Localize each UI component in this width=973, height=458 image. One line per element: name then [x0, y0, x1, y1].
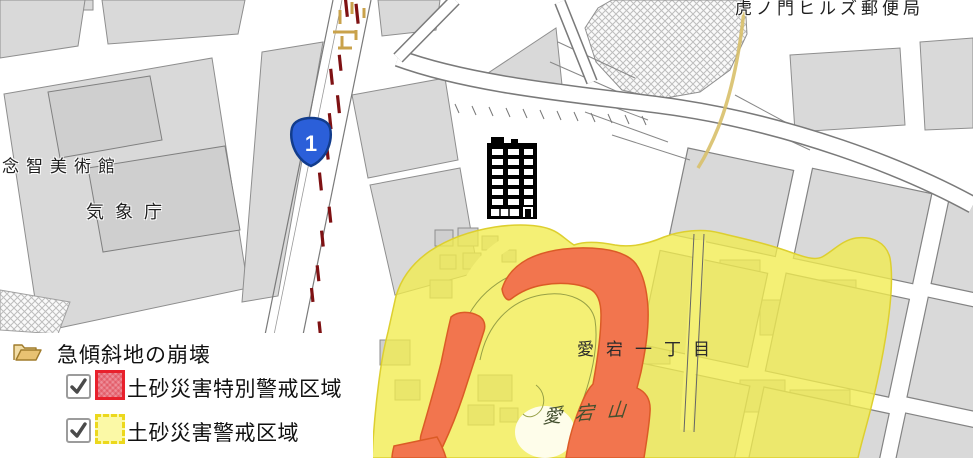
- checkmark-icon: [68, 376, 89, 397]
- map-label-post-office: 虎ノ門ヒルズ郵便局: [735, 0, 924, 19]
- legend-label-special-warning: 土砂災害特別警戒区域: [127, 373, 342, 403]
- map-label-atago-1chome: 愛宕一丁目: [577, 335, 722, 360]
- checkmark-icon: [68, 420, 89, 441]
- map-label-museum: 念智美術館: [2, 152, 122, 177]
- folder-open-icon[interactable]: [12, 341, 42, 363]
- legend-row-special-warning: 土砂災害特別警戒区域: [0, 372, 373, 402]
- map-canvas[interactable]: 1 念智美術館 気象庁 虎ノ門ヒルズ郵便局 愛宕一丁目 愛宕山 急傾斜地の崩壊 …: [0, 0, 973, 458]
- legend-row-warning: 土砂災害警戒区域: [0, 416, 373, 446]
- legend-group-title[interactable]: 急傾斜地の崩壊: [57, 339, 211, 369]
- route-number: 1: [305, 131, 317, 156]
- checkbox-warning[interactable]: [66, 418, 91, 443]
- legend-panel: 急傾斜地の崩壊 土砂災害特別警戒区域 土砂災害警戒区域: [0, 333, 373, 458]
- legend-label-warning: 土砂災害警戒区域: [127, 417, 299, 447]
- swatch-warning: [95, 414, 125, 444]
- swatch-special-warning: [95, 370, 125, 400]
- building-icon: [487, 137, 537, 219]
- checkbox-special-warning[interactable]: [66, 374, 91, 399]
- map-label-jma: 気象庁: [86, 198, 173, 224]
